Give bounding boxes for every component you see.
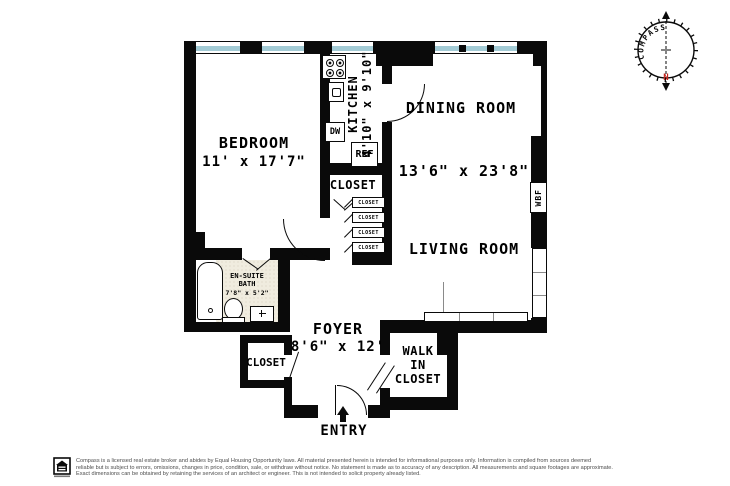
dishwasher-label: DW bbox=[330, 127, 340, 137]
disclaimer-line2: reliable but is subject to errors, omiss… bbox=[76, 465, 728, 472]
column-line bbox=[443, 282, 444, 312]
kitchen-sink-basin bbox=[332, 88, 341, 97]
compass-word: COMPASS bbox=[636, 23, 667, 61]
bath-name-line1: EN-SUITE bbox=[214, 272, 280, 280]
small-closet-chip: CLOSET bbox=[352, 242, 385, 253]
window-glass bbox=[192, 46, 240, 51]
wall-bedroom-bottom-a bbox=[184, 248, 242, 260]
bedroom-dims: 11' x 17'7" bbox=[186, 154, 322, 170]
compass-arrow-top bbox=[662, 11, 670, 19]
window-bedroom-right bbox=[262, 41, 304, 54]
entry-arrow-stem bbox=[340, 414, 346, 422]
small-closet-chip: CLOSET bbox=[352, 227, 385, 238]
radiator-divider bbox=[533, 295, 546, 296]
stove-burner bbox=[336, 69, 344, 77]
kitchen-label-block: KITCHEN 4'10" x 9'10" bbox=[346, 44, 374, 164]
foyer-closet-label: CLOSET bbox=[244, 356, 288, 369]
wall-entry-left bbox=[284, 405, 318, 418]
wall-dining-topleft-block bbox=[376, 54, 433, 66]
stove-burner bbox=[326, 59, 334, 67]
compass-word-path: COMPASS bbox=[636, 23, 667, 61]
small-closet-label: CLOSET bbox=[358, 245, 378, 251]
wall-bath-bottom bbox=[184, 322, 290, 332]
wall-wic-right bbox=[447, 333, 458, 410]
small-closet-chip: CLOSET bbox=[352, 212, 385, 223]
window-mullion bbox=[487, 45, 494, 52]
small-closet-chip: CLOSET bbox=[352, 197, 385, 208]
kitchen-name: KITCHEN bbox=[346, 44, 360, 164]
radiator-right bbox=[532, 248, 547, 318]
dining-room-label: DINING ROOM bbox=[396, 99, 526, 117]
foyer-name: FOYER bbox=[282, 320, 394, 338]
radiator-bottom bbox=[424, 312, 528, 322]
fireplace-wbf-box: WBF bbox=[530, 182, 547, 213]
small-closet-label: CLOSET bbox=[358, 230, 378, 236]
small-closet-label: CLOSET bbox=[358, 200, 378, 206]
wic-line3: CLOSET bbox=[388, 372, 448, 386]
door-mark-hall-closet bbox=[333, 199, 345, 210]
bedroom-name: BEDROOM bbox=[186, 134, 322, 152]
radiator-divider bbox=[533, 272, 546, 273]
hall-closet-label: CLOSET bbox=[324, 178, 382, 192]
living-room-dims: 13'6" x 23'8" bbox=[392, 162, 536, 180]
wall-left bbox=[184, 41, 196, 332]
radiator-divider bbox=[459, 313, 460, 321]
wic-line1: WALK bbox=[388, 344, 448, 358]
small-closet-label: CLOSET bbox=[358, 215, 378, 221]
radiator-divider bbox=[493, 313, 494, 321]
toilet-tank bbox=[222, 317, 245, 323]
walk-in-closet-label-block: WALK IN CLOSET bbox=[388, 344, 448, 386]
entry-label: ENTRY bbox=[316, 423, 372, 439]
equal-housing-logo bbox=[53, 457, 71, 478]
fireplace-wbf-label: WBF bbox=[534, 189, 543, 206]
stove bbox=[322, 55, 346, 79]
bath-label-block: EN-SUITE BATH 7'8" x 5'2" bbox=[214, 272, 280, 297]
bedroom-label-block: BEDROOM 11' x 17'7" bbox=[186, 134, 322, 170]
compass-arrow-bottom bbox=[662, 83, 670, 91]
disclaimer-line3: Exact dimensions can be obtained by reta… bbox=[76, 471, 728, 478]
floor-plan-page: WBF DW bbox=[0, 0, 730, 486]
window-dining bbox=[435, 41, 517, 54]
stove-burner bbox=[326, 69, 334, 77]
door-leaf-foyer-closet bbox=[288, 352, 299, 382]
stove-burner bbox=[336, 59, 344, 67]
wall-right-corner-top bbox=[533, 54, 547, 66]
compass-rose: N COMPASS bbox=[626, 2, 706, 97]
compass-north-label: N bbox=[663, 73, 668, 83]
dishwasher-box: DW bbox=[325, 122, 345, 142]
wic-line2: IN bbox=[388, 358, 448, 372]
bathtub-drain bbox=[208, 308, 213, 313]
window-glass bbox=[262, 46, 304, 51]
window-mullion bbox=[459, 45, 466, 52]
bath-name-line2: BATH bbox=[214, 280, 280, 288]
bath-sink-handle bbox=[261, 310, 262, 317]
disclaimer-text: Compass is a licensed real estate broker… bbox=[76, 458, 728, 478]
wall-closet-column-base bbox=[352, 253, 392, 265]
kitchen-sink bbox=[328, 82, 344, 102]
window-bedroom-left bbox=[192, 41, 240, 54]
wall-right-thin bbox=[541, 66, 547, 136]
living-room-label: LIVING ROOM bbox=[392, 240, 536, 258]
kitchen-dims: 4'10" x 9'10" bbox=[360, 44, 374, 164]
door-leaf-walkin bbox=[367, 362, 386, 390]
window-glass bbox=[435, 46, 517, 51]
door-leaf-entry bbox=[335, 385, 336, 415]
foyer-dims: 8'6" x 12' bbox=[282, 339, 394, 355]
bath-dims: 7'8" x 5'2" bbox=[214, 289, 280, 297]
disclaimer-line1: Compass is a licensed real estate broker… bbox=[76, 458, 728, 465]
foyer-label-block: FOYER 8'6" x 12' bbox=[282, 320, 394, 355]
